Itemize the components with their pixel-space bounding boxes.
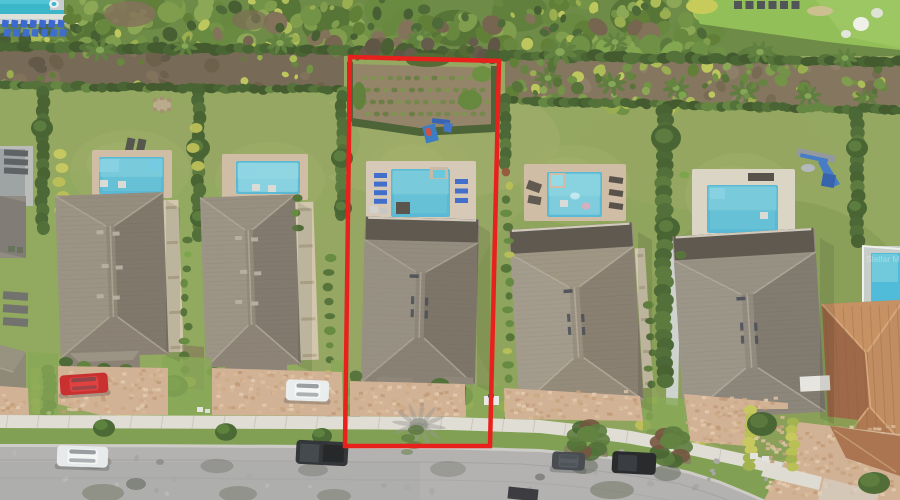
svg-text:Stellar MLS: Stellar MLS <box>866 254 900 264</box>
